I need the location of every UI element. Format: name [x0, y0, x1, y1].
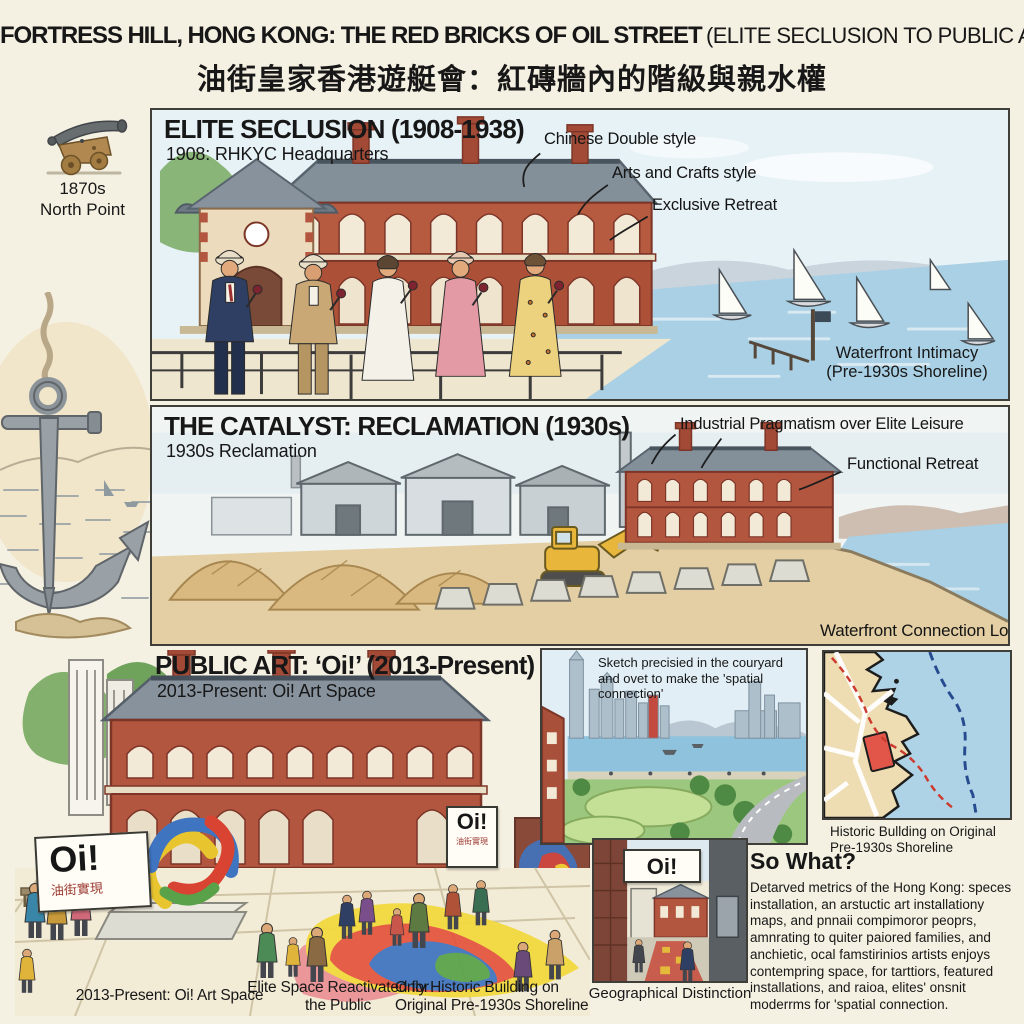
so-what-body: Detarved metrics of the Hong Kong: spece…	[750, 880, 1022, 1014]
map-inset	[822, 650, 1012, 820]
shoreline-map-illustration	[824, 652, 1010, 818]
panel1-subheading: 1908: RHKYC Headquarters	[166, 144, 388, 165]
waterfront-connection-lost-label: Waterfront Connection Lost	[820, 621, 1010, 641]
so-what-heading: So What?	[750, 848, 856, 875]
cannon-caption: 1870s North Point	[20, 178, 145, 221]
cannon-caption-line1: 1870s	[20, 178, 145, 199]
annotation-arts-and-crafts-style: Arts and Crafts style	[612, 164, 756, 183]
annotation-exclusive-retreat: Exclusive Retreat	[652, 196, 777, 215]
map-caption: Historic Bullding on Original Pre-1930s …	[830, 824, 1024, 856]
panel3-subheading: 2013-Present: Oi! Art Space	[157, 681, 376, 702]
cannon-caption-line2: North Point	[20, 199, 145, 220]
anchor-icon	[0, 292, 160, 650]
panel2-subheading: 1930s Reclamation	[166, 441, 317, 462]
panel1-heading: ELITE SECLUSION (1908-1938)	[164, 114, 524, 145]
annotation-chinese-double-style: Chinese Double style	[544, 130, 696, 149]
panel-reclamation: THE CATALYST: RECLAMATION (1930s) 1930s …	[150, 405, 1010, 646]
building-oi-sign-chinese: 油街實現	[448, 836, 496, 847]
panel2-heading: THE CATALYST: RECLAMATION (1930s)	[164, 411, 629, 442]
infographic-poster: FORTRESS HILL, HONG KONG: THE RED BRICKS…	[0, 0, 1024, 1024]
page-title: FORTRESS HILL, HONG KONG: THE RED BRICKS…	[0, 22, 1024, 50]
corridor-inset: Oi!	[592, 838, 748, 983]
waterfront-intimacy-label: Waterfront Intimacy (Pre-1930s Shoreline…	[807, 344, 1007, 382]
sketch-inset-caption: Sketch precisied in the couryard and ove…	[598, 655, 804, 702]
corridor-caption: Geographical Distinction	[588, 985, 752, 1002]
annotation-industrial-pragmatism: Industrial Pragmatism over Elite Leisure	[680, 415, 964, 434]
left-oi-sign-text: Oi!	[36, 837, 148, 879]
annotation-functional-retreat: Functional Retreat	[847, 455, 978, 474]
panel-elite-seclusion: ELITE SECLUSION (1908-1938) 1908: RHKYC …	[150, 108, 1010, 401]
title-main: FORTRESS HILL, HONG KONG: THE RED BRICKS…	[0, 22, 702, 49]
title-paren: (ELITE SECLUSION TO PUBLIC ART)	[706, 23, 1024, 48]
building-oi-sign: Oi! 油街實現	[446, 806, 498, 868]
cannon-icon	[36, 110, 134, 178]
page-title-chinese: 油街皇家香港遊艇會：紅磚牆內的階級與親水權	[0, 56, 1024, 98]
bottom-caption-only-historic: Only Historic Building on Original Pre-1…	[395, 979, 600, 1016]
building-oi-sign-text: Oi!	[448, 811, 496, 833]
panel3-heading: PUBLIC ART: ‘Oi!’ (2013-Present)	[155, 650, 534, 681]
corridor-oi-sign: Oi!	[623, 849, 701, 883]
left-oi-signboard: Oi! 油街實現	[34, 831, 152, 913]
sketch-inset: Sketch precisied in the couryard and ove…	[540, 648, 808, 845]
